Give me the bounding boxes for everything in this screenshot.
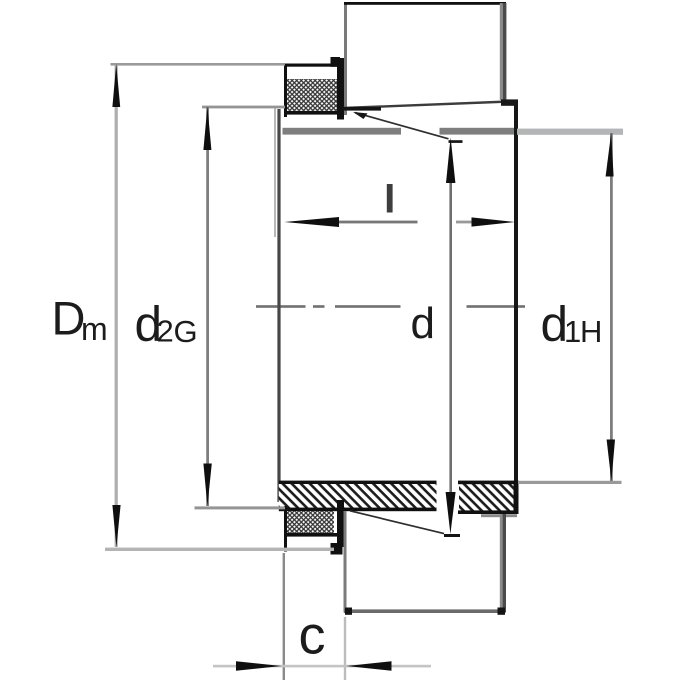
svg-text:c: c (299, 606, 326, 666)
svg-text:d: d (411, 299, 435, 348)
svg-text:2: 2 (157, 314, 174, 349)
svg-text:H: H (580, 314, 602, 349)
svg-text:G: G (174, 314, 198, 349)
svg-text:m: m (81, 311, 108, 347)
svg-text:1: 1 (564, 314, 581, 349)
